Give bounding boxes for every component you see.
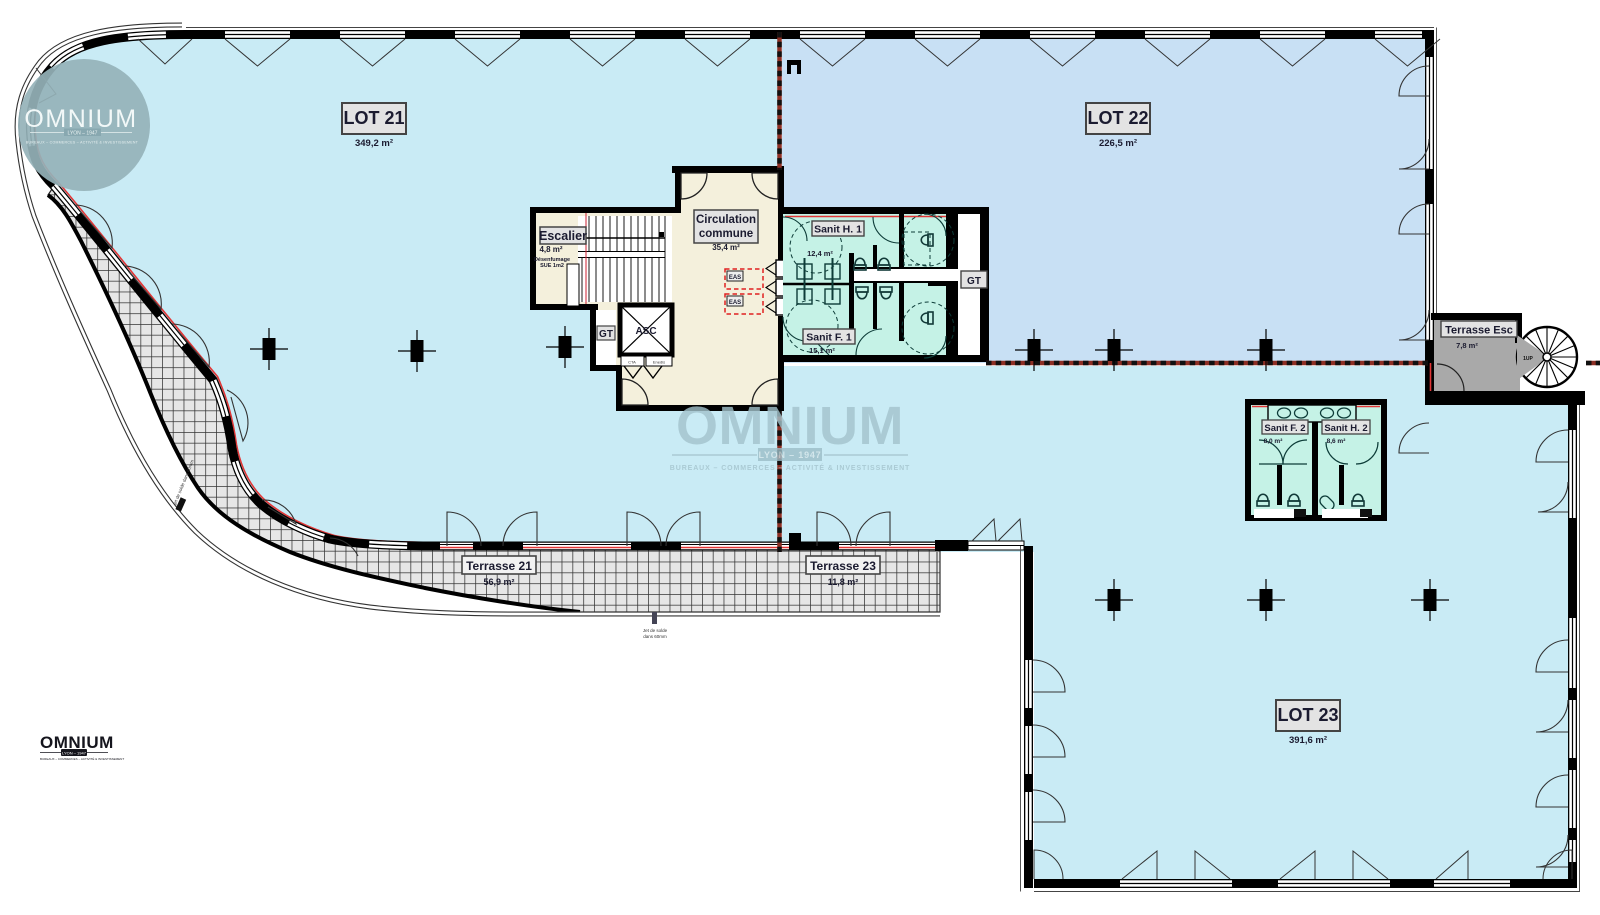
svg-text:Circulation: Circulation [696,214,756,226]
svg-text:7,8 m²: 7,8 m² [1456,341,1478,350]
svg-text:Sanit F. 2: Sanit F. 2 [1264,423,1305,434]
svg-text:EAS: EAS [729,300,741,306]
svg-text:commune: commune [699,228,753,240]
svg-text:dans 60mm: dans 60mm [643,634,667,639]
svg-text:349,2 m²: 349,2 m² [355,138,393,149]
svg-text:391,6 m²: 391,6 m² [1289,735,1327,746]
svg-text:EAS: EAS [729,275,741,281]
svg-text:LOT 21: LOT 21 [343,108,404,128]
svg-text:35,4 m²: 35,4 m² [712,243,740,252]
svg-text:Sanit F. 1: Sanit F. 1 [806,332,852,344]
svg-text:Jet de solde: Jet de solde [643,628,668,633]
svg-text:Terrasse Esc: Terrasse Esc [1445,325,1513,337]
svg-text:LOT 23: LOT 23 [1277,705,1338,725]
svg-text:ASC: ASC [635,326,656,337]
svg-text:8,6 m²: 8,6 m² [1327,438,1347,445]
svg-text:SUE 1m2: SUE 1m2 [540,263,564,269]
svg-text:Sanit H. 2: Sanit H. 2 [1324,423,1367,434]
svg-text:Enedis: Enedis [653,360,665,365]
svg-text:LYON – 1947: LYON – 1947 [758,450,821,460]
svg-text:4,8 m²: 4,8 m² [539,245,562,254]
svg-text:BUREAUX – COMMERCES – ACTIVITÉ: BUREAUX – COMMERCES – ACTIVITÉ & INVESTI… [40,756,124,761]
svg-text:Terrasse 21: Terrasse 21 [466,559,532,573]
svg-text:OMNIUM: OMNIUM [676,396,904,456]
svg-text:BUREAUX – COMMERCES – ACTIVITÉ: BUREAUX – COMMERCES – ACTIVITÉ & INVESTI… [26,140,139,145]
svg-text:12,4 m²: 12,4 m² [807,249,833,258]
svg-text:LYON – 1947: LYON – 1947 [62,751,87,756]
svg-text:GT: GT [599,329,613,340]
svg-text:BUREAUX – COMMERCES – ACTIVITÉ: BUREAUX – COMMERCES – ACTIVITÉ & INVESTI… [670,463,910,472]
svg-text:LOT 22: LOT 22 [1087,108,1148,128]
svg-text:15,1 m²: 15,1 m² [809,346,835,355]
svg-text:11,8 m²: 11,8 m² [828,577,859,587]
svg-text:1UP: 1UP [1523,356,1533,362]
svg-text:226,5 m²: 226,5 m² [1099,138,1137,149]
svg-text:CTA: CTA [628,360,636,365]
svg-text:GT: GT [967,276,981,287]
svg-text:Terrasse 23: Terrasse 23 [810,559,876,573]
svg-text:LYON – 1947: LYON – 1947 [68,131,98,137]
svg-text:Escalier: Escalier [539,229,587,243]
svg-text:56,9 m²: 56,9 m² [483,577,514,587]
svg-text:8,0 m²: 8,0 m² [1264,438,1284,445]
svg-text:Sanit H. 1: Sanit H. 1 [814,224,862,236]
